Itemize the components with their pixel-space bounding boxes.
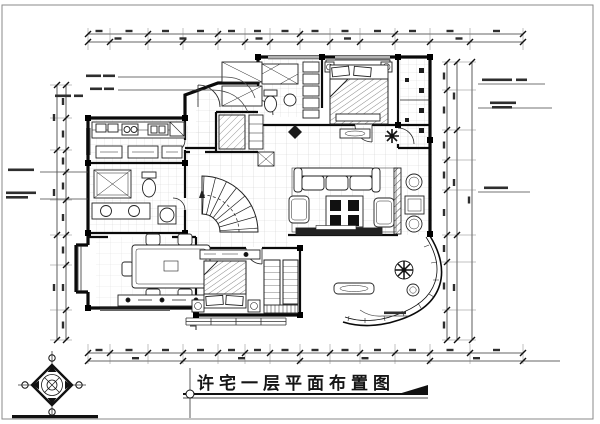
drawing-title: 许宅一层平面布置图 xyxy=(197,373,395,394)
console-table-icon xyxy=(340,129,370,138)
axis-circle-icon xyxy=(186,390,194,398)
plant-icon xyxy=(395,261,413,279)
basin-icon xyxy=(101,206,112,217)
floor-plan-drawing: 许宅一层平面布置图 xyxy=(0,0,600,424)
sofa-icon xyxy=(298,168,374,176)
balcony xyxy=(334,245,439,323)
toilet-icon xyxy=(142,172,156,178)
master-bedroom xyxy=(325,60,392,124)
lamp-icon xyxy=(251,303,258,310)
solid-triangle-icon xyxy=(400,385,428,394)
title-block: 许宅一层平面布置图 xyxy=(183,368,428,418)
lamp-icon xyxy=(195,303,202,310)
basin-icon xyxy=(284,94,296,106)
wardrobe-icon xyxy=(264,260,280,308)
bathroom-2 xyxy=(219,62,263,149)
toilet-icon xyxy=(265,96,277,112)
bed-bench-icon xyxy=(336,114,380,121)
washer-icon xyxy=(160,208,174,222)
plant-icon xyxy=(385,129,399,143)
compass-rose-icon xyxy=(12,351,98,418)
floor-plan-sheet: 许宅一层平面布置图 xyxy=(0,0,600,424)
screen-divider xyxy=(394,168,401,234)
basin-icon xyxy=(129,206,140,217)
